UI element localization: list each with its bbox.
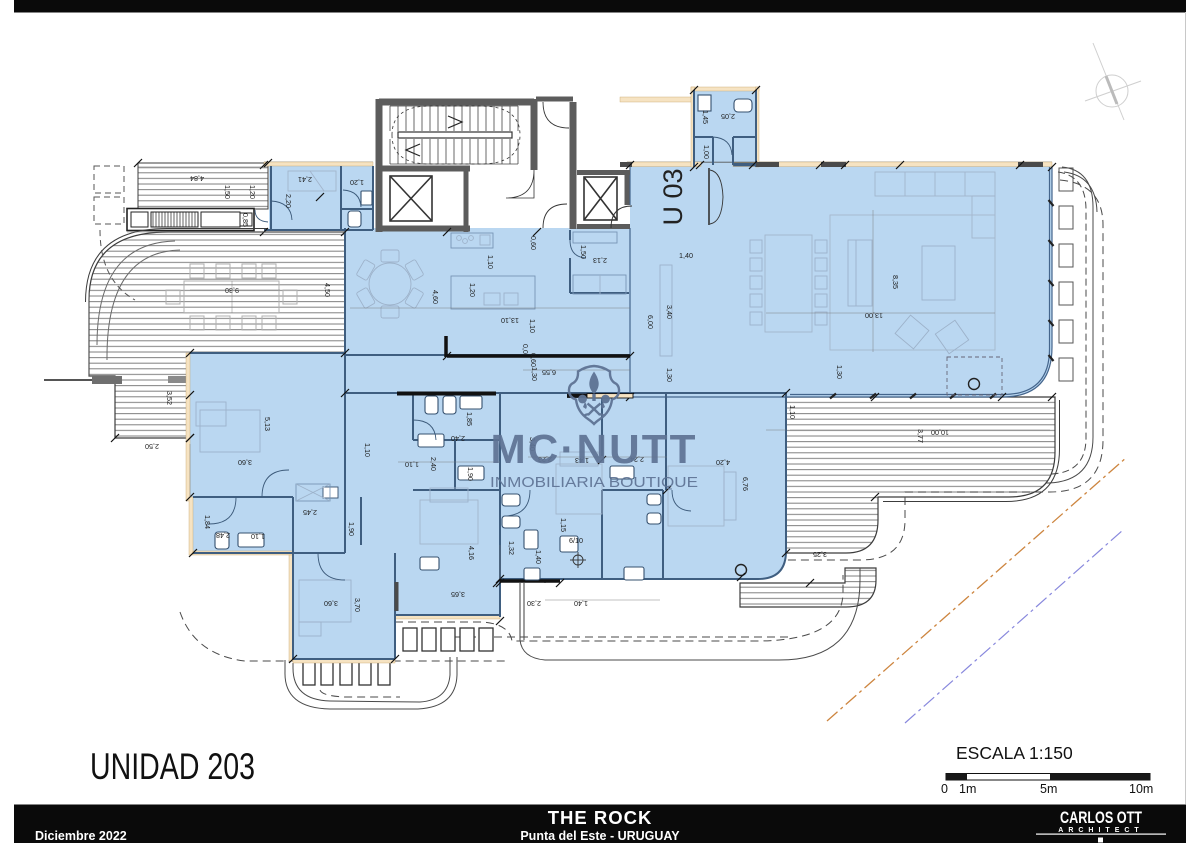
svg-text:THE ROCK: THE ROCK (548, 807, 653, 828)
svg-text:2,30: 2,30 (527, 599, 541, 608)
svg-text:0,60: 0,60 (529, 353, 538, 367)
svg-text:1,10: 1,10 (788, 405, 797, 419)
svg-text:10m: 10m (1129, 782, 1153, 796)
svg-text:1,85: 1,85 (465, 412, 474, 426)
svg-text:1,20: 1,20 (468, 283, 477, 297)
svg-text:ESCALA 1:150: ESCALA 1:150 (956, 743, 1073, 763)
svg-text:2,45: 2,45 (303, 508, 317, 517)
svg-text:3,77: 3,77 (916, 429, 925, 443)
svg-text:5,13: 5,13 (263, 417, 272, 431)
svg-text:U 03: U 03 (658, 168, 688, 225)
svg-text:13,10: 13,10 (501, 316, 519, 325)
svg-text:0,85: 0,85 (241, 213, 250, 227)
svg-text:1,50: 1,50 (579, 245, 588, 259)
svg-text:6/10: 6/10 (569, 536, 583, 545)
svg-text:6,55: 6,55 (542, 368, 556, 377)
svg-text:10,00: 10,00 (931, 428, 949, 437)
svg-text:6,76: 6,76 (741, 477, 750, 491)
svg-text:4,16: 4,16 (467, 546, 476, 560)
svg-text:1,00: 1,00 (702, 145, 711, 159)
svg-text:1,10: 1,10 (486, 255, 495, 269)
svg-text:1,90: 1,90 (466, 467, 475, 481)
svg-text:1,40: 1,40 (534, 550, 543, 564)
svg-text:2,05: 2,05 (721, 112, 735, 121)
svg-text:Punta del Este - URUGUAY: Punta del Este - URUGUAY (520, 829, 680, 843)
svg-text:ARCHITECT: ARCHITECT (1058, 827, 1143, 834)
svg-text:1,15: 1,15 (559, 518, 568, 532)
svg-text:1,84: 1,84 (203, 515, 212, 529)
svg-text:CARLOS OTT: CARLOS OTT (1060, 809, 1142, 827)
svg-text:1,30: 1,30 (835, 365, 844, 379)
svg-text:1,10: 1,10 (363, 443, 372, 457)
svg-text:1,45: 1,45 (701, 110, 710, 124)
svg-text:2,48: 2,48 (216, 531, 230, 540)
svg-text:6,00: 6,00 (646, 315, 655, 329)
svg-text:1,30: 1,30 (665, 368, 674, 382)
svg-text:2,40: 2,40 (429, 457, 438, 471)
svg-text:3,65: 3,65 (451, 590, 465, 599)
svg-text:1,10: 1,10 (405, 460, 419, 469)
svg-text:3,25: 3,25 (813, 550, 827, 559)
svg-text:4,50: 4,50 (323, 283, 332, 297)
svg-text:1m: 1m (959, 782, 976, 796)
svg-text:1,30: 1,30 (530, 367, 539, 381)
svg-text:0,60: 0,60 (529, 236, 538, 250)
svg-text:1,40: 1,40 (679, 251, 693, 260)
svg-text:8,35: 8,35 (891, 275, 900, 289)
svg-text:INMOBILIARIA BOUTIQUE: INMOBILIARIA BOUTIQUE (490, 475, 698, 491)
svg-text:Diciembre 2022: Diciembre 2022 (35, 829, 127, 843)
svg-text:2,40: 2,40 (451, 434, 465, 443)
svg-text:1,50: 1,50 (223, 185, 232, 199)
svg-text:1,20: 1,20 (248, 185, 257, 199)
svg-text:4,84: 4,84 (190, 174, 204, 183)
svg-text:UNIDAD 203: UNIDAD 203 (90, 746, 255, 787)
svg-text:1,20: 1,20 (350, 178, 364, 187)
svg-text:MC·NUTT: MC·NUTT (491, 426, 698, 472)
svg-text:3,52: 3,52 (165, 391, 174, 405)
svg-text:3,60: 3,60 (238, 458, 252, 467)
svg-text:4,20: 4,20 (716, 458, 730, 467)
svg-text:2,50: 2,50 (145, 442, 159, 451)
svg-text:1,32: 1,32 (507, 541, 516, 555)
svg-text:13,00: 13,00 (865, 311, 883, 320)
svg-text:1,90: 1,90 (347, 522, 356, 536)
svg-text:2,13: 2,13 (593, 256, 607, 265)
svg-text:5m: 5m (1040, 782, 1057, 796)
svg-text:0,0: 0,0 (521, 344, 530, 354)
svg-text:3,60: 3,60 (324, 599, 338, 608)
svg-text:1,40: 1,40 (574, 599, 588, 608)
svg-text:0: 0 (941, 782, 948, 796)
svg-text:1,10: 1,10 (528, 319, 537, 333)
svg-text:3,70: 3,70 (353, 598, 362, 612)
svg-text:2,41: 2,41 (298, 175, 312, 184)
svg-text:1,10: 1,10 (251, 532, 265, 541)
svg-text:4,60: 4,60 (431, 290, 440, 304)
svg-text:2,20: 2,20 (284, 194, 293, 208)
svg-text:3,40: 3,40 (665, 305, 674, 319)
